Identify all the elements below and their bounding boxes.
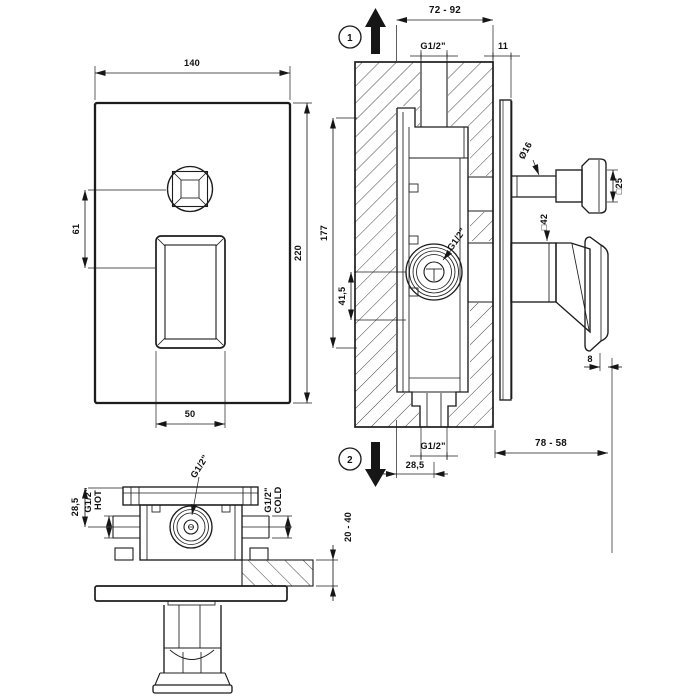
dim-knob-square: □25 — [607, 170, 624, 202]
section-view: 1 2 72 - 92 G1/2" — [319, 5, 624, 553]
step-marker-1: 1 — [339, 8, 386, 54]
dim-label-finished-wall: 20 - 40 — [343, 512, 353, 542]
dim-button-offset: 61 — [71, 190, 166, 268]
dim-inlet-thread: G1/2" — [410, 41, 458, 62]
lever-handle-front — [156, 236, 225, 348]
dim-label-knob-square: □25 — [614, 178, 624, 194]
label-cold-text: COLD — [273, 486, 283, 513]
dim-label-stem-diameter: Ø16 — [517, 140, 534, 161]
dim-protrusion-range: 78 - 58 — [495, 430, 608, 458]
dim-label-button-offset: 61 — [71, 224, 81, 235]
valve-flange-plan — [123, 487, 258, 512]
outlet-port-plan — [170, 506, 212, 548]
front-view: 140 220 61 50 — [71, 58, 312, 428]
label-stem-diameter: Ø16 — [517, 140, 539, 175]
label-hot-thread: G1/2" — [83, 487, 93, 512]
dim-label-plate-height: 220 — [293, 245, 303, 261]
dim-lever-square: □42 — [539, 214, 549, 241]
dim-label-wall-depth: 72 - 92 — [429, 5, 461, 16]
finished-wall-hatch — [242, 560, 313, 586]
dim-label-lever-width: 50 — [185, 409, 196, 419]
dim-label-plate-width: 140 — [184, 58, 200, 68]
technical-drawing-page: 140 220 61 50 — [0, 0, 700, 700]
trim-plate-front — [95, 103, 290, 403]
plan-view: 28,5 G1/2" HOT G1/2" G1/2" COLD — [70, 453, 353, 693]
dim-label-flange-to-axis: 28,5 — [70, 498, 80, 517]
step-2-label: 2 — [347, 455, 353, 466]
dim-label-grip-thickness: 8 — [587, 354, 592, 364]
step-1-label: 1 — [347, 33, 353, 44]
dim-plate-width: 140 — [95, 58, 290, 100]
dim-label-protrusion: 78 - 58 — [535, 438, 567, 449]
dim-outlet-thread: G1/2" — [410, 427, 458, 460]
dim-label-lever-square: □42 — [539, 214, 549, 230]
dim-plate-height: 220 — [293, 103, 312, 403]
diverter-button-front — [168, 167, 213, 212]
dim-label-plate-clearance: 11 — [498, 41, 508, 51]
dim-label-outlet-offset: 28,5 — [406, 460, 425, 470]
step-marker-2: 2 — [339, 442, 386, 487]
lever-handle-plan — [153, 605, 232, 693]
dim-label-outlet-thread: G1/2" — [420, 441, 445, 451]
label-cold-thread: G1/2" — [263, 487, 273, 512]
arrow-up-icon — [365, 8, 386, 54]
label-hot-text: HOT — [93, 490, 103, 510]
dim-lever-width: 50 — [156, 351, 225, 428]
trim-plate-plan — [95, 586, 287, 605]
dim-label-body-height: 177 — [319, 225, 329, 241]
dim-label-port-offset: 41,5 — [337, 287, 347, 306]
mixer-installation-drawing: 140 220 61 50 — [0, 0, 700, 700]
diverter-button-section — [511, 159, 606, 213]
dim-label-plan-outlet: G1/2" — [189, 453, 211, 480]
lever-handle-section — [511, 237, 608, 351]
dim-label-inlet-thread: G1/2" — [420, 41, 445, 51]
label-cold-inlet: G1/2" COLD — [263, 486, 292, 538]
arrow-down-icon — [365, 442, 386, 487]
dim-finished-wall-range: 20 - 40 — [316, 512, 353, 601]
label-hot-inlet: G1/2" HOT — [83, 487, 113, 538]
